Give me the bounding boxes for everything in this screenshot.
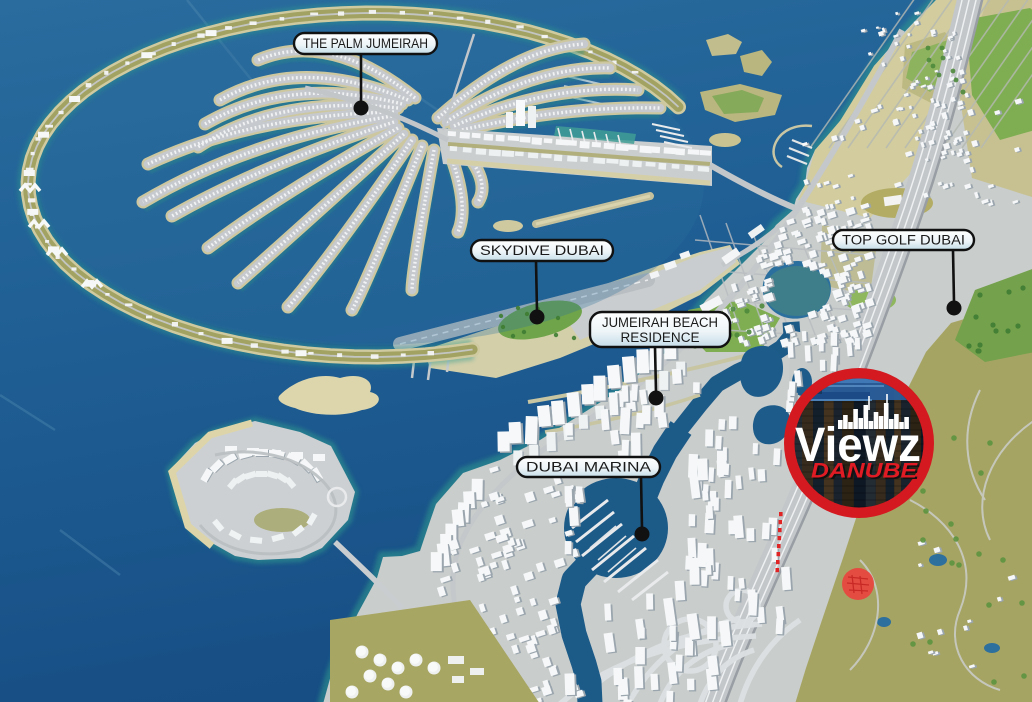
svg-text:RESIDENCE: RESIDENCE — [621, 330, 700, 345]
svg-text:DANUBE: DANUBE — [811, 460, 918, 483]
svg-text:THE PALM JUMEIRAH: THE PALM JUMEIRAH — [303, 36, 428, 51]
svg-text:DUBAI MARINA: DUBAI MARINA — [526, 460, 651, 475]
svg-text:SKYDIVE DUBAI: SKYDIVE DUBAI — [480, 243, 604, 258]
svg-text:JUMEIRAH BEACH: JUMEIRAH BEACH — [602, 315, 718, 330]
svg-text:TOP GOLF DUBAI: TOP GOLF DUBAI — [842, 233, 965, 248]
